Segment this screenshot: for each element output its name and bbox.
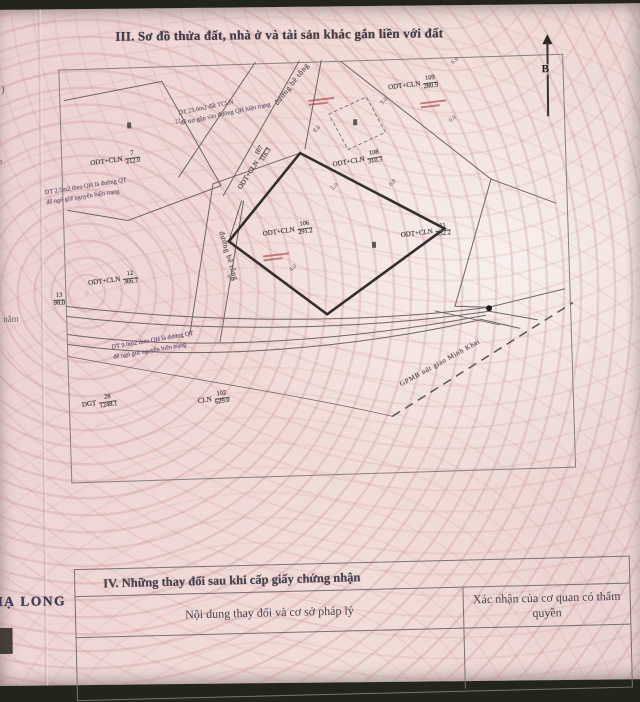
house-marker-icon: [127, 122, 131, 128]
binding-fold: [38, 9, 48, 685]
map-note-2: DT 9.0m2 theo QH là đường QTđể ngỏ giữ n…: [111, 329, 196, 362]
edge-length-5: 8.8: [312, 125, 322, 134]
cadastral-map: ODT+CLN7212.0ODT+CLN107116.3ODT+CLN10629…: [58, 54, 576, 484]
parcel-label-7: ODT+CLN7212.0: [89, 150, 140, 171]
certificate-page: III. Sơ đồ thửa đất, nhà ở và tài sản kh…: [0, 3, 640, 686]
north-arrow-icon: B: [540, 34, 555, 118]
edge-length-0: 9.8: [379, 97, 389, 106]
red-annotation: [263, 252, 290, 263]
map-note-1: DT 2.5m2 theo QH là đường QTđể ngỏ giữ n…: [44, 176, 129, 208]
edge-length-1: 6.9: [450, 57, 460, 66]
dashed-road-label: GPMB nút giao Minh Khai: [398, 338, 481, 389]
parcel-label-11: ODT+CLN11532.2: [400, 222, 451, 242]
edge-length-6: 4.0: [289, 264, 299, 274]
margin-text-nam: năm: [3, 314, 19, 324]
empty-cell-content: [77, 629, 466, 698]
section4-table: IV. Những thay đổi sau khi cấp giấy chứn…: [74, 556, 633, 702]
parcel-label-109: ODT+CLN109280.9: [387, 75, 438, 95]
house-marker-icon: [353, 119, 357, 125]
parcel-label-28: DGT281248.1: [81, 393, 118, 412]
house-marker-icon: [372, 242, 376, 248]
section3-title: III. Sơ đồ thửa đất, nhà ở và tài sản kh…: [54, 25, 504, 46]
photo-corner-mark: [0, 628, 13, 654]
parcel-label-13: 1398.0: [50, 293, 65, 308]
parcel-label-102: CLN102629.0: [197, 390, 230, 409]
empty-cell-confirmation: [464, 625, 631, 689]
parcel-label-106: ODT+CLN106291.2: [262, 220, 313, 241]
north-label: B: [542, 64, 549, 75]
red-annotation: [308, 97, 335, 108]
column-header-confirmation: Xác nhận của cơ quan có thẩm quyền: [463, 584, 630, 628]
map-note-0: DT 23.0m2 đất TCLNđể trợ gộp vào đường Q…: [178, 90, 272, 128]
edge-length-2: 6.0: [448, 115, 458, 124]
edge-length-4: 5.0: [330, 182, 340, 191]
parcel-label-12: ODT+CLN12366.7: [87, 270, 138, 290]
red-annotation: [420, 99, 447, 110]
margin-text-ao: ao: [0, 156, 2, 166]
edge-length-3: 6.8: [388, 178, 398, 187]
map-annotations: ODT+CLN7212.0ODT+CLN107116.3ODT+CLN10629…: [59, 55, 575, 483]
north-arrow-shaft: [546, 42, 549, 116]
margin-text-bracket: ): [1, 84, 5, 96]
ha-long-stamp-text: HẠ LONG: [0, 593, 66, 610]
parcel-label-107: ODT+CLN107116.3: [234, 143, 273, 193]
parcel-label-108: ODT+CLN108310.3: [331, 149, 383, 172]
road-label-0: đường bê tông: [272, 61, 311, 107]
